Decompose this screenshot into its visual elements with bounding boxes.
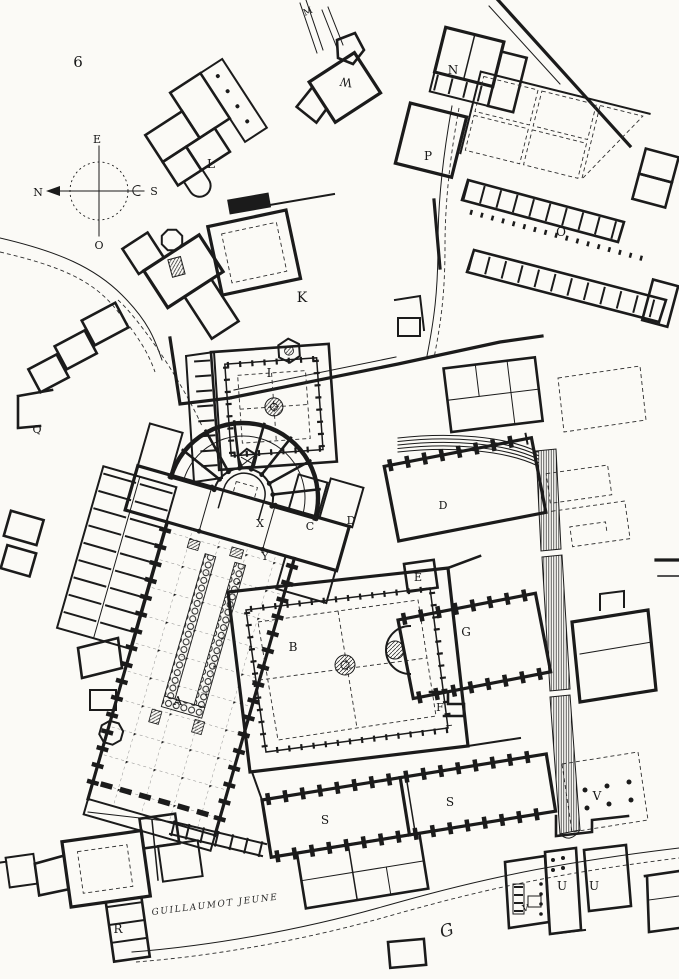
s-halls <box>262 754 565 913</box>
compass-west: O <box>94 239 103 252</box>
label-u1: U <box>557 879 567 893</box>
label-o: O <box>556 225 566 239</box>
label-k: K <box>297 290 308 306</box>
label-r: R <box>113 922 123 936</box>
north-east-complex <box>395 23 678 326</box>
label-n: N <box>448 63 459 77</box>
building-w <box>289 33 381 135</box>
label-i: I <box>267 366 272 380</box>
label-f: F <box>436 701 444 714</box>
compass-north: N <box>33 186 43 199</box>
abbey-plan-engraving: E N S O 6 A B C D D E F G I K L M N O P … <box>0 0 679 979</box>
small-cloister <box>210 336 337 470</box>
hall-g <box>398 593 551 698</box>
label-c: C <box>306 520 314 533</box>
compass-rose: E N S O <box>33 133 158 252</box>
hall-d <box>384 438 546 541</box>
label-g: G <box>461 625 471 639</box>
formal-garden <box>460 72 649 196</box>
label-s2: S <box>446 795 454 809</box>
stair-turret <box>162 230 182 250</box>
label-v: V <box>592 789 602 803</box>
label-q: Q <box>32 423 41 436</box>
label-d2: D <box>439 499 448 512</box>
u-buildings <box>388 845 679 968</box>
engraver-signature: GUILLAUMOT JEUNE <box>151 892 279 917</box>
building-l-cluster <box>133 59 334 215</box>
north-arrow <box>46 186 60 196</box>
plate-number: 6 <box>73 53 83 71</box>
label-v2: V <box>521 903 531 914</box>
compass-east: E <box>93 133 101 146</box>
compass-south: S <box>150 185 158 198</box>
label-u2: U <box>589 879 599 893</box>
label-y: Y <box>260 550 269 563</box>
label-d: D <box>347 514 356 527</box>
label-m: M <box>302 6 315 19</box>
label-s1: S <box>321 813 329 827</box>
engraving-sheet: E N S O 6 A B C D D E F G I K L M N O P … <box>0 0 679 979</box>
engraver-mark: G <box>437 920 456 943</box>
label-p: P <box>424 149 432 163</box>
label-w: W <box>338 74 353 90</box>
label-b: B <box>289 640 298 654</box>
label-x: X <box>256 517 264 530</box>
enclosure-q <box>18 303 136 428</box>
solid-wall-block <box>227 192 271 214</box>
label-e: E <box>414 571 422 584</box>
cloister-fountain <box>335 655 355 675</box>
court-k-area <box>122 210 542 404</box>
label-a: A <box>173 694 183 708</box>
east-building <box>572 610 656 702</box>
label-l: L <box>207 157 215 171</box>
